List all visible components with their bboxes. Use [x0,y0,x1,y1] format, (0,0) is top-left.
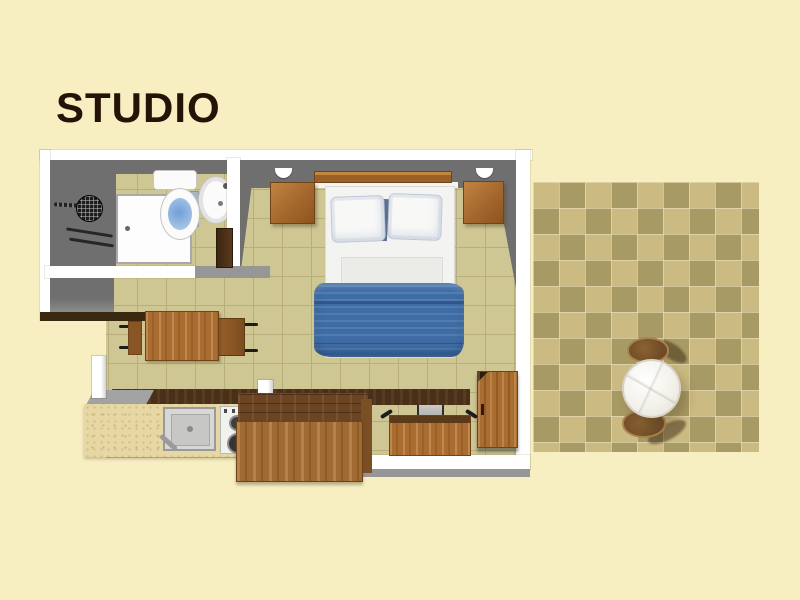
desk-top-edge [390,416,470,423]
kitchen-sink [163,407,216,451]
headboard [314,171,452,183]
wardrobe-handle-icon [481,404,484,415]
wardrobe [477,371,518,448]
wall-left [40,150,50,320]
toilet-tank [153,170,197,190]
toilet-water [168,198,192,230]
wall-pillar-left [92,356,106,398]
floor-plan-canvas: STUDIO [0,0,800,600]
dining-chair-left [128,321,142,355]
shower-head-icon [76,195,103,222]
basin-drain-icon [218,201,223,206]
dining-chair-right [217,318,245,356]
terrace-round-table [622,359,681,418]
dining-chair-right-leg1 [244,323,258,326]
nightstand-left [270,182,315,224]
double-bed [325,186,455,358]
wall-bottom [360,455,530,469]
wall-right [516,150,530,470]
entry-nook-wall [50,278,114,314]
pillow-left [330,195,386,243]
page-title: STUDIO [56,84,221,132]
pillow-right [387,193,443,241]
dining-chair-right-leg2 [244,349,258,352]
cabinet-top [238,393,368,422]
sink-drain-icon [187,426,193,432]
door-handle-icon [125,226,130,231]
cabinet-front [236,421,363,482]
dining-table [145,311,219,361]
wall-shelf [40,312,146,321]
wall-bottom-shadow [360,469,530,477]
wall-top [40,150,532,160]
nightstand-right [463,181,504,224]
blue-blanket [314,283,464,357]
bathroom-wall-bottom [45,266,195,278]
desk [389,415,471,456]
bathroom-door-leaf [216,228,233,268]
